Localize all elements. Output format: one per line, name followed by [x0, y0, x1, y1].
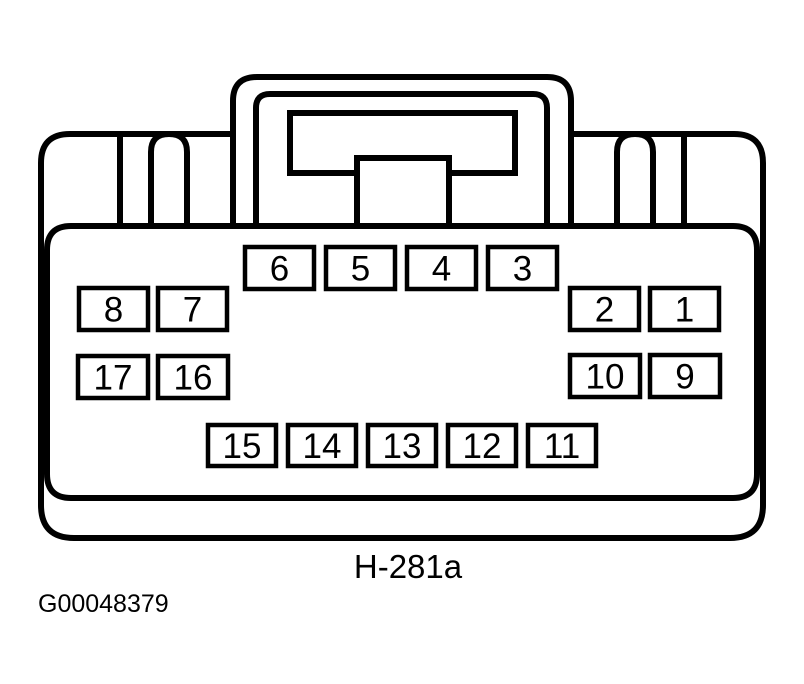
pin-number-16: 16: [174, 359, 213, 398]
pin-number-15: 15: [223, 427, 262, 466]
pin-number-14: 14: [303, 427, 342, 466]
pin-number-11: 11: [544, 427, 580, 466]
pin-number-5: 5: [351, 250, 370, 289]
pin-number-17: 17: [94, 359, 133, 398]
pin-number-6: 6: [270, 250, 289, 289]
connector-label: H-281a: [354, 548, 463, 585]
pin-number-10: 10: [586, 358, 625, 397]
pin-number-7: 7: [183, 291, 202, 330]
connector-diagram: 6543872117161091514131211 H-281a G000483…: [0, 0, 804, 684]
pin-number-13: 13: [383, 427, 422, 466]
left-rib-dome: [151, 134, 187, 226]
diagram-canvas: 6543872117161091514131211 H-281a G000483…: [0, 0, 804, 684]
pin-grid: 6543872117161091514131211: [78, 247, 720, 466]
pin-number-8: 8: [104, 291, 123, 330]
pin-number-9: 9: [675, 358, 694, 397]
latch-slot-outline: [290, 113, 515, 173]
latch-key-notch: [357, 158, 449, 226]
right-rib-dome: [617, 134, 653, 226]
pin-number-2: 2: [595, 291, 614, 330]
pin-number-1: 1: [675, 291, 694, 330]
pin-number-4: 4: [432, 250, 451, 289]
pin-number-3: 3: [513, 250, 532, 289]
figure-id: G00048379: [38, 590, 169, 618]
pin-number-12: 12: [463, 427, 502, 466]
latch-outer-outline: [233, 77, 571, 226]
